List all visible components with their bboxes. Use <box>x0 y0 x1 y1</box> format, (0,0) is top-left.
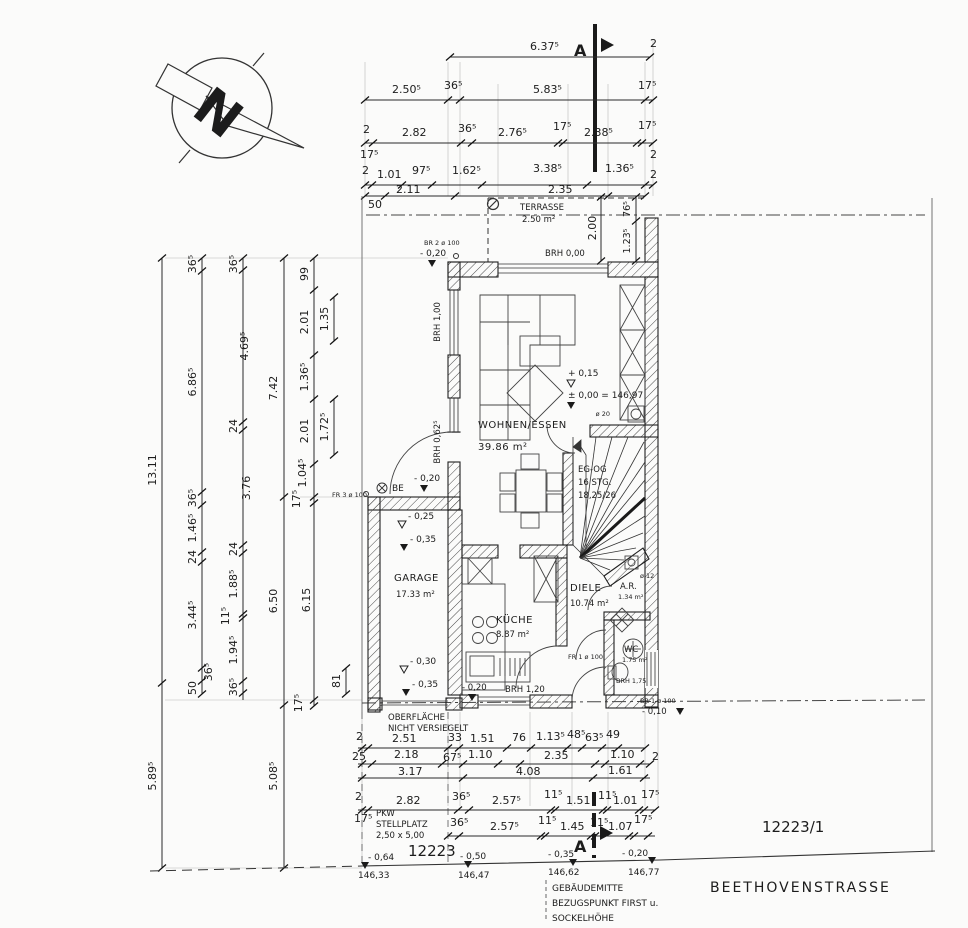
opening-label: BR 1 ø 100 <box>640 697 676 705</box>
dim-label: 36⁵ <box>186 489 199 507</box>
elev-abs: 146,62 <box>548 868 580 878</box>
ref-note: BEZUGSPUNKT FIRST u. <box>552 899 658 909</box>
level-label: - 0,10 <box>642 707 667 717</box>
dim-label: 1.35 <box>318 307 331 332</box>
dim-label: 7.42 <box>267 376 280 401</box>
brh-label: BRH 1,00 <box>433 302 443 342</box>
dim-label: 5.83⁵ <box>533 83 562 96</box>
living-area: 39.86 m² <box>478 442 528 453</box>
dim-label: 99 <box>298 267 311 281</box>
dim-label: 11⁵ <box>538 814 556 827</box>
ref-note: GEBÄUDEMITTE <box>552 883 623 894</box>
dim-label: 17⁵ <box>360 148 378 161</box>
opening-label: BR 2 ø 100 <box>424 239 460 247</box>
dim-label: 67⁵ <box>443 751 461 764</box>
dim-label: 1.01 <box>613 794 638 807</box>
duct-label: ø 12 <box>640 572 654 580</box>
dim-label: 1.45 <box>560 820 585 833</box>
dim-label: 36⁵ <box>458 122 476 135</box>
ar-area: 1.34 m² <box>618 593 644 601</box>
dim-label: 11⁵ <box>219 607 232 625</box>
elev-abs: 146,77 <box>628 868 660 878</box>
dim-label: 1.72⁵ <box>318 413 331 442</box>
dim-label: 1.07 <box>608 820 633 833</box>
dim-label: 33 <box>448 731 462 744</box>
furniture <box>462 285 645 690</box>
dim-label: 24 <box>186 550 199 564</box>
dim-label: 2.00 <box>586 216 599 241</box>
dim-label: 2.35 <box>548 183 573 196</box>
elev-rel: - 0,64 <box>368 853 394 863</box>
diele-name: DIELE <box>570 583 601 594</box>
room-area: 2.50 m² <box>522 215 555 225</box>
dim-label: 3.17 <box>398 765 423 778</box>
dim-label: 2.11 <box>396 183 421 196</box>
dim-label: 1.36⁵ <box>605 162 634 175</box>
dim-label: 1.01 <box>377 168 402 181</box>
brh-label: BRH 0,00 <box>545 249 585 259</box>
dim-label: 11⁵ <box>544 788 562 801</box>
dim-label: 50 <box>368 198 382 211</box>
floor-plan-sheet: N A 6.37⁵ 2 2.50⁵ 36⁵ 5.83⁵ 17⁵ 2 17⁵ 2.… <box>0 0 968 928</box>
dim-label: 17⁵ <box>641 788 659 801</box>
wc-area: 1.75 m² <box>622 656 648 664</box>
dim-label: 36⁵ <box>444 79 462 92</box>
dim-label: 50 <box>186 681 199 695</box>
dim-label: 13.11 <box>146 454 159 486</box>
dim-label: 24 <box>227 419 240 433</box>
dim-label: 17⁵ <box>634 813 652 826</box>
stairs-l1: EG-OG <box>578 465 607 475</box>
dim-label: 2.01 <box>298 310 311 335</box>
dim-label: 63⁵ <box>585 731 603 744</box>
dim-label: 2.38⁵ <box>584 126 613 139</box>
dim-label: 17⁵ <box>638 119 656 132</box>
diele-area: 10.74 m² <box>570 599 609 609</box>
dim-label: 2 <box>650 168 657 181</box>
dim-label: 1.51 <box>470 732 495 745</box>
dim-label: 4.08 <box>516 765 541 778</box>
dim-label: 48⁵ <box>567 728 585 741</box>
brh-label: BRH 0,62⁵ <box>433 420 443 463</box>
left-dimension-chains: 13.11 5.89⁵ 36⁵ 6.86⁵ 36⁵ 1.46⁵ 24 3.44⁵… <box>146 255 350 872</box>
dim-label: 2 <box>652 750 659 763</box>
dim-label: 1.88⁵ <box>227 570 240 599</box>
level-label: - 0,35 <box>412 680 438 690</box>
dim-label: 6.50 <box>267 589 280 614</box>
level-label: - 0,20 <box>462 683 487 693</box>
dim-label: 1.46⁵ <box>186 514 199 543</box>
dim-label: 2.82 <box>402 126 427 139</box>
living-name: WOHNEN/ESSEN <box>478 420 567 431</box>
dim-label: 2.35 <box>544 749 569 762</box>
pkw-label: 2,50 x 5,00 <box>376 831 424 841</box>
opening-label: FR 1 ø 100 <box>568 653 603 661</box>
dim-label: 49 <box>606 728 620 741</box>
dim-label: 17⁵ <box>638 79 656 92</box>
level-label: - 0,35 <box>410 535 436 545</box>
garage-name: GARAGE <box>394 573 439 584</box>
duct-label: ø 20 <box>596 410 610 418</box>
dim-label: 3.76 <box>240 476 253 501</box>
dim-label: 3.38⁵ <box>533 162 562 175</box>
dim-label: 2.57⁵ <box>492 794 521 807</box>
dim-label: 1.04⁵ <box>296 459 309 488</box>
section-letter: A <box>574 837 587 856</box>
opening-label: FR 3 ø 100 <box>332 491 367 499</box>
dim-label: 97⁵ <box>412 164 430 177</box>
dim-label: 24 <box>227 542 240 556</box>
ar-name: A.R. <box>620 582 637 592</box>
dim-label: 5.89⁵ <box>146 762 159 791</box>
dim-label: 2.01 <box>298 419 311 444</box>
dim-label: 36⁵ <box>186 255 199 273</box>
dim-label: 1.13⁵ <box>536 730 565 743</box>
level-label: - 0,30 <box>410 657 436 667</box>
level-label: - 0,20 <box>420 249 446 259</box>
parcel-number: 12223 <box>408 842 456 860</box>
dim-label: 2 <box>363 123 370 136</box>
dim-label: 17⁵ <box>290 490 303 508</box>
dim-label: 2.18 <box>394 748 419 761</box>
dim-label: 4.69⁵ <box>238 332 251 361</box>
dim-label: 81 <box>330 674 343 688</box>
dim-label: 6.86⁵ <box>186 368 199 397</box>
elev-rel: - 0,50 <box>460 852 486 862</box>
dim-label: 76 <box>512 731 526 744</box>
dim-label: 6.37⁵ <box>530 40 559 53</box>
dim-label: 36⁵ <box>202 663 215 681</box>
surface-note: OBERFLÄCHE <box>388 712 445 723</box>
dim-label: 2 <box>650 37 657 50</box>
kitchen-area: 8.87 m² <box>496 630 529 640</box>
dim-label: 2.76⁵ <box>498 126 527 139</box>
dim-label: 25 <box>352 750 366 763</box>
dim-label: 1.61 <box>608 764 633 777</box>
brh-label: BRH 1,20 <box>505 685 545 695</box>
stairs-l2: 16 STG. <box>578 478 611 488</box>
stairs-l3: 18,25/26 <box>578 491 616 501</box>
dim-label: 1.23⁵ <box>622 228 633 253</box>
stairs-labels: EG-OG 16 STG. 18,25/26 <box>578 465 616 501</box>
be-label: BE <box>392 484 404 494</box>
dim-label: 2 <box>356 730 363 743</box>
dim-label: 17⁵ <box>553 120 571 133</box>
kitchen-name: KÜCHE <box>496 613 533 626</box>
level-label: - 0,25 <box>408 512 434 522</box>
dim-label: 17⁵ <box>292 694 305 712</box>
room-label: TERRASSE <box>519 203 564 213</box>
dim-label: 2 <box>650 148 657 161</box>
dim-label: 17⁵ <box>354 812 372 825</box>
dim-label: 1.10 <box>468 748 493 761</box>
ref-note: SOCKELHÖHE <box>552 913 614 924</box>
pkw-label: STELLPLATZ <box>376 820 428 830</box>
parcel-number-2: 12223/1 <box>762 818 824 836</box>
dim-label: 1.10 <box>610 748 635 761</box>
elev-rel: - 0,35 <box>548 850 574 860</box>
brh-label: BRH 1,75 <box>616 677 646 685</box>
dim-label: 6.15 <box>300 588 313 613</box>
dim-label: 36⁵ <box>227 255 240 273</box>
elev-abs: 146,33 <box>358 871 390 881</box>
dim-label: 2 <box>355 790 362 803</box>
terrace: TERRASSE 2.50 m² BRH 0,00 2.00 76⁵ 1.23⁵… <box>420 194 645 268</box>
north-arrow-icon: N <box>156 53 304 163</box>
dim-label: 36⁵ <box>227 678 240 696</box>
dim-label: 2.82 <box>396 794 421 807</box>
dim-label: 36⁵ <box>452 790 470 803</box>
garage-area: 17.33 m² <box>396 590 435 600</box>
dim-label: 3.44⁵ <box>186 601 199 630</box>
dim-label: 1.36⁵ <box>298 363 311 392</box>
top-dimension-chains: 6.37⁵ 2 2.50⁵ 36⁵ 5.83⁵ 17⁵ 2 17⁵ 2.82 3… <box>360 37 657 211</box>
pkw-label: PKW <box>376 809 395 819</box>
dim-label: 1.94⁵ <box>227 636 240 665</box>
dim-label: 2.51 <box>392 732 417 745</box>
dim-label: 2 <box>362 164 369 177</box>
level-label: + 0,15 <box>568 369 598 379</box>
level-label: - 0,20 <box>414 474 440 484</box>
elev-rel: - 0,20 <box>622 849 648 859</box>
dim-label: 76⁵ <box>622 201 633 217</box>
wc-name: WC <box>624 645 638 655</box>
dim-label: 5.08⁵ <box>267 762 280 791</box>
elev-abs: 146,47 <box>458 871 490 881</box>
dim-label: 2.50⁵ <box>392 83 421 96</box>
dim-label: 2.57⁵ <box>490 820 519 833</box>
level-label: ± 0,00 = 146,97 <box>568 391 643 401</box>
plan-drawing: N A 6.37⁵ 2 2.50⁵ 36⁵ 5.83⁵ 17⁵ 2 17⁵ 2.… <box>0 0 968 928</box>
dim-label: 1.51 <box>566 794 591 807</box>
dim-label: 1.62⁵ <box>452 164 481 177</box>
street-name: BEETHOVENSTRASSE <box>710 880 891 896</box>
dim-label: 36⁵ <box>450 816 468 829</box>
